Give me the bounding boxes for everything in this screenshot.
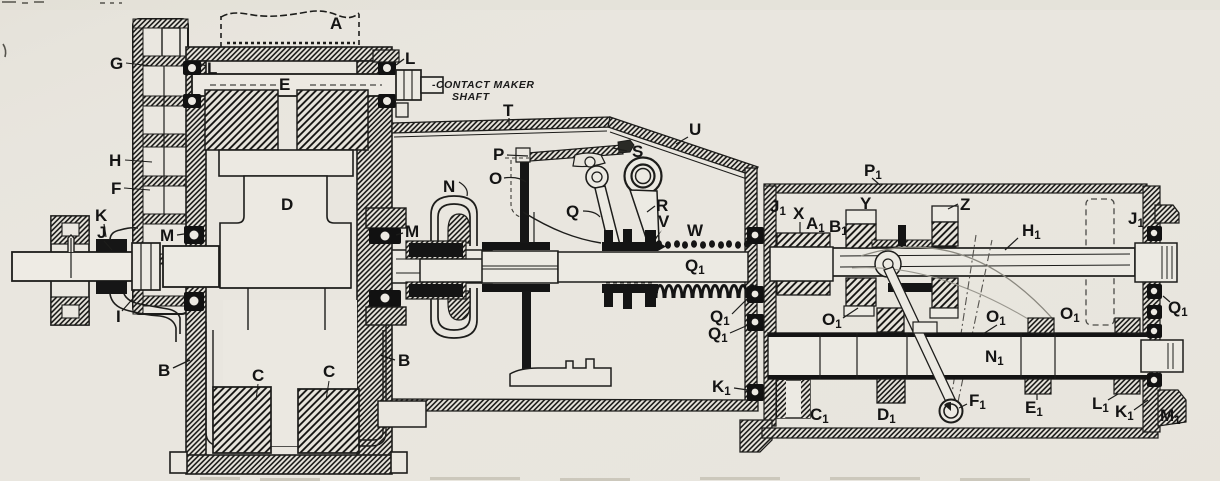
svg-text:A: A	[330, 14, 342, 33]
svg-text:N: N	[443, 177, 455, 196]
svg-text:L: L	[405, 49, 415, 68]
svg-text:O: O	[489, 169, 502, 188]
svg-text:Y: Y	[860, 194, 872, 213]
svg-text:B: B	[158, 361, 170, 380]
svg-text:F: F	[111, 179, 121, 198]
svg-text:M: M	[160, 226, 174, 245]
svg-text:G: G	[110, 54, 123, 73]
svg-text:C: C	[323, 362, 335, 381]
svg-text:S: S	[632, 142, 643, 161]
svg-text:SHAFT: SHAFT	[452, 91, 491, 103]
svg-text:U: U	[689, 120, 701, 139]
svg-text:W: W	[687, 221, 704, 240]
svg-text:Z: Z	[960, 195, 970, 214]
svg-text:Q: Q	[566, 202, 579, 221]
svg-text:E: E	[279, 75, 290, 94]
svg-text:H: H	[109, 151, 121, 170]
svg-text:C: C	[252, 366, 264, 385]
svg-text:V: V	[658, 212, 670, 231]
svg-text:D: D	[281, 195, 293, 214]
svg-text:I: I	[116, 307, 121, 326]
svg-text:M: M	[405, 222, 419, 241]
svg-text:B: B	[398, 351, 410, 370]
svg-text:P: P	[493, 145, 504, 164]
svg-text:L: L	[207, 59, 217, 78]
svg-text:T: T	[503, 101, 514, 120]
svg-text:J: J	[97, 223, 106, 242]
svg-text:-CONTACT MAKER: -CONTACT MAKER	[432, 79, 534, 91]
svg-text:X: X	[793, 204, 805, 223]
